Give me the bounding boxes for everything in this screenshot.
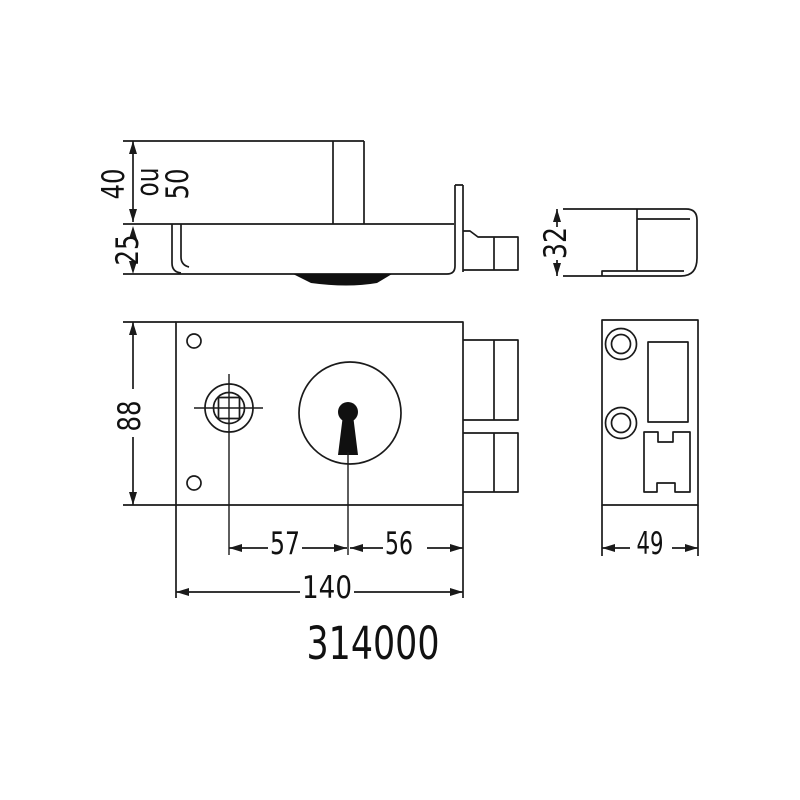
strike-screw-bottom-outer <box>606 408 637 439</box>
arrow-up-icon <box>129 322 137 335</box>
follower-square-spindle <box>194 374 263 555</box>
arrow-left-icon <box>229 544 242 552</box>
dim-88: 88 <box>112 322 176 505</box>
lock-front-view: 88 57 56 140 <box>112 322 518 606</box>
arrow-down-icon <box>129 209 137 222</box>
keyhole-body <box>338 415 358 455</box>
dim-88-label: 88 <box>112 401 148 432</box>
arrow-left-icon <box>602 544 615 552</box>
arrow-down-icon <box>553 263 561 276</box>
strike-screw-top-inner <box>612 335 631 354</box>
strike-front-view: 49 <box>602 320 698 562</box>
strike-top-view: 32 <box>538 209 697 276</box>
dim-49: 49 <box>602 505 698 562</box>
part-number: 314000 <box>307 617 440 670</box>
dim-56-label: 56 <box>385 526 413 562</box>
lock-top-bolt <box>463 231 518 270</box>
lock-top-view: 40 ou 50 25 <box>96 141 518 286</box>
screw-hole-top <box>187 334 201 348</box>
dim-32: 32 <box>538 209 574 276</box>
dim-32-label: 32 <box>538 227 574 259</box>
latchbolt <box>463 433 518 492</box>
strike-plate <box>602 320 698 505</box>
dim-40-label: 40 <box>96 169 132 200</box>
technical-drawing: 40 ou 50 25 32 <box>0 0 800 800</box>
arrow-up-icon <box>553 209 561 222</box>
strike-deadbolt-hole <box>648 342 688 422</box>
dim-50-label: 50 <box>160 169 196 200</box>
dim-140: 140 <box>176 505 463 606</box>
lock-case-top-outline <box>123 141 463 274</box>
dim-49-label: 49 <box>637 526 664 562</box>
arrow-right-icon <box>334 544 347 552</box>
strike-screw-top-outer <box>606 329 637 360</box>
strike-latch-hole <box>644 432 690 492</box>
lock-top-escutcheon <box>293 274 392 286</box>
arrow-up-icon <box>129 141 137 154</box>
deadbolt <box>463 340 518 420</box>
arrow-right-icon <box>685 544 698 552</box>
dim-57-label: 57 <box>270 526 300 562</box>
dim-57: 57 <box>229 526 347 562</box>
arrow-left-icon <box>350 544 363 552</box>
screw-hole-bottom <box>187 476 201 490</box>
arrow-right-icon <box>450 588 463 596</box>
arrow-left-icon <box>176 588 189 596</box>
arrow-right-icon <box>450 544 463 552</box>
strike-top-outline <box>563 209 697 276</box>
dim-40-50: 40 ou 50 <box>96 141 196 222</box>
dim-25: 25 <box>110 226 146 274</box>
dim-25-label: 25 <box>110 235 146 266</box>
arrow-down-icon <box>129 492 137 505</box>
dim-140-label: 140 <box>302 570 352 606</box>
dim-56: 56 <box>350 526 463 562</box>
strike-screw-bottom-inner <box>612 414 631 433</box>
